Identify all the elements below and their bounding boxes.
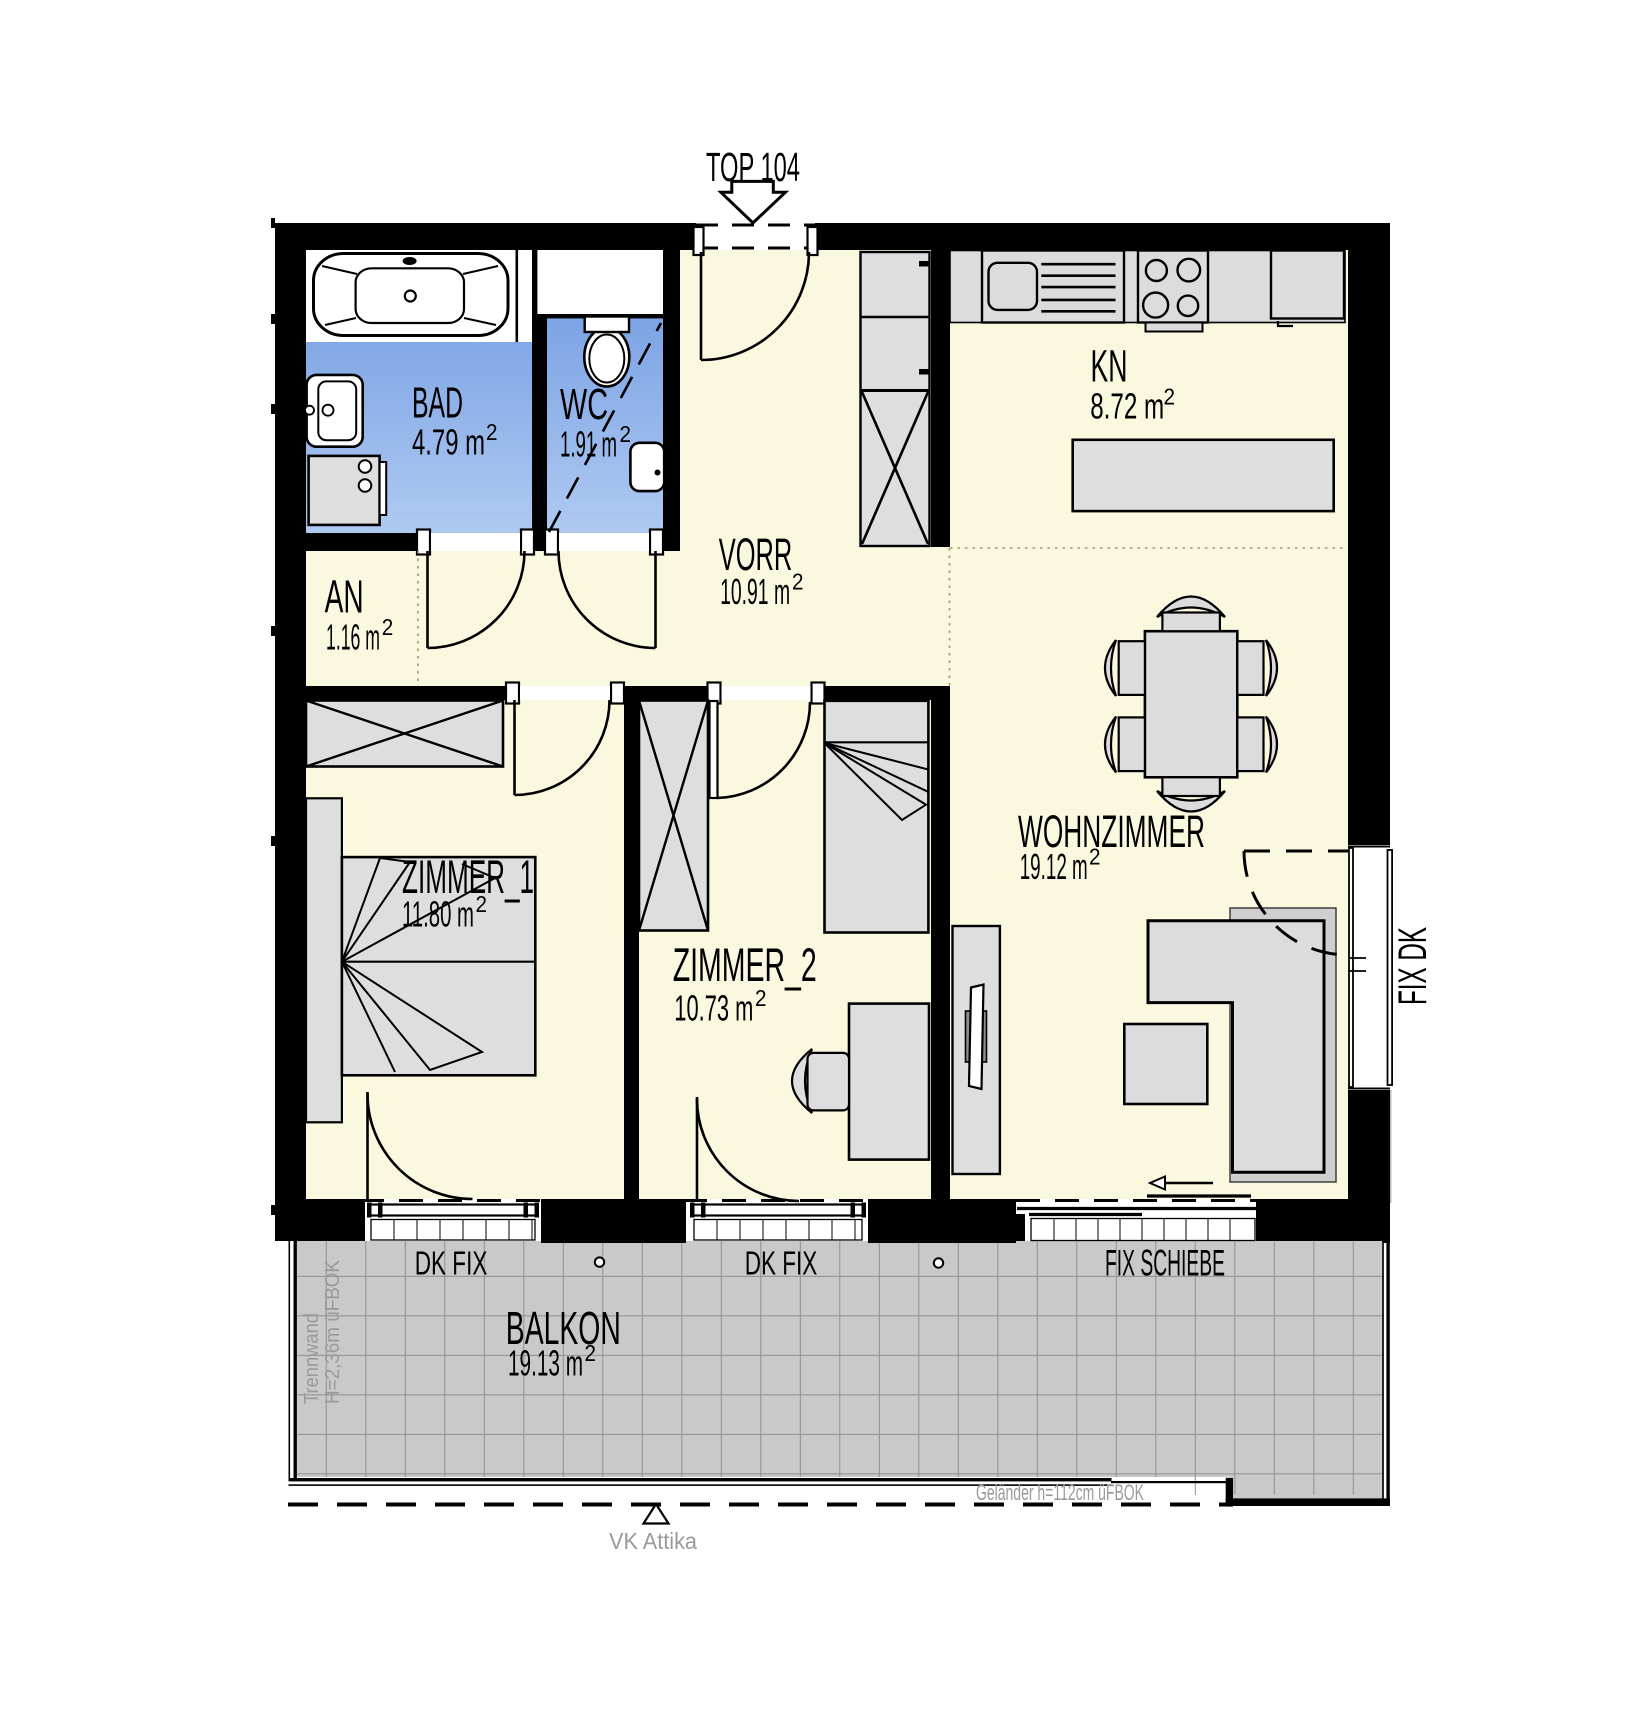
svg-text:2: 2 bbox=[620, 421, 632, 447]
svg-text:H=2,36m üFBOK: H=2,36m üFBOK bbox=[322, 1259, 344, 1404]
svg-text:4.79 m: 4.79 m bbox=[412, 422, 485, 463]
svg-text:1.16 m: 1.16 m bbox=[326, 617, 380, 658]
svg-text:AN: AN bbox=[325, 571, 364, 623]
svg-text:Trennwand: Trennwand bbox=[301, 1313, 323, 1404]
svg-text:2: 2 bbox=[755, 985, 767, 1011]
svg-text:Geländer h=112cm üFBOK: Geländer h=112cm üFBOK bbox=[976, 1480, 1144, 1505]
svg-text:FIX SCHIEBE: FIX SCHIEBE bbox=[1105, 1243, 1225, 1284]
svg-text:WC: WC bbox=[560, 380, 608, 429]
svg-text:2: 2 bbox=[382, 614, 394, 640]
svg-text:2: 2 bbox=[585, 1340, 597, 1366]
svg-text:FIX DK: FIX DK bbox=[1391, 927, 1435, 1005]
svg-text:8.72 m: 8.72 m bbox=[1090, 386, 1164, 427]
svg-text:BAD: BAD bbox=[412, 378, 463, 427]
svg-text:19.12 m: 19.12 m bbox=[1020, 846, 1088, 887]
svg-text:2: 2 bbox=[476, 891, 488, 917]
svg-text:19.13 m: 19.13 m bbox=[508, 1343, 583, 1384]
svg-text:KN: KN bbox=[1091, 341, 1128, 392]
svg-text:DK FIX: DK FIX bbox=[415, 1245, 488, 1282]
svg-text:2: 2 bbox=[1089, 844, 1101, 870]
svg-text:1.91 m: 1.91 m bbox=[560, 424, 617, 465]
svg-text:10.73 m: 10.73 m bbox=[674, 987, 753, 1028]
svg-text:VK Attika: VK Attika bbox=[609, 1528, 697, 1554]
svg-text:2: 2 bbox=[486, 419, 498, 445]
svg-text:2: 2 bbox=[792, 569, 804, 595]
svg-text:ZIMMER_2: ZIMMER_2 bbox=[673, 938, 817, 991]
svg-text:11.80 m: 11.80 m bbox=[402, 893, 474, 934]
svg-text:TOP 104: TOP 104 bbox=[706, 144, 800, 190]
svg-text:10.91 m: 10.91 m bbox=[720, 571, 790, 612]
svg-text:DK FIX: DK FIX bbox=[745, 1245, 818, 1282]
svg-text:2: 2 bbox=[1164, 384, 1176, 410]
